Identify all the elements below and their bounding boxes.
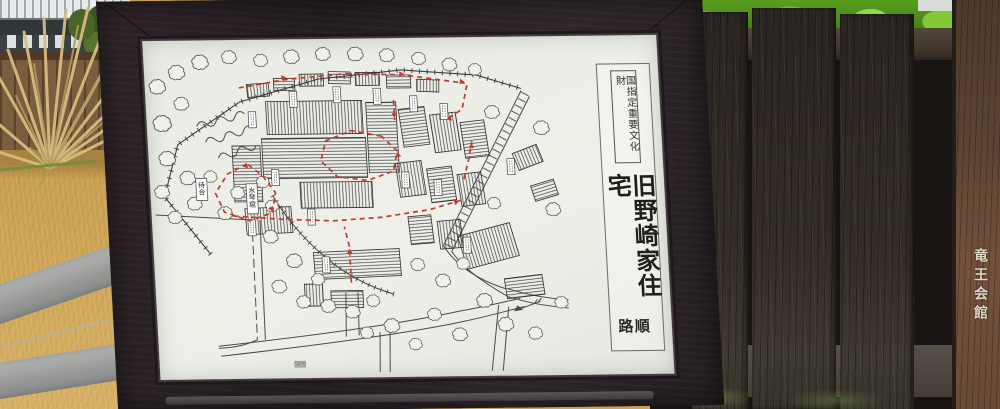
label-machiai: 待合: [197, 181, 206, 197]
frame-miter: [646, 0, 690, 34]
stamp-mark: [295, 361, 306, 367]
site-map: 待合 水琴窟: [144, 38, 574, 375]
board-title: 旧野崎家住宅: [604, 173, 661, 315]
map-panel: 待合 水琴窟: [142, 35, 674, 380]
hall-plaque-plank: 竜王会館: [956, 0, 1000, 409]
hall-plaque-text: 竜王会館: [970, 248, 990, 324]
label-suikinkutsu: 水琴窟: [248, 186, 257, 209]
notice-board: 待合 水琴窟: [96, 0, 724, 409]
frame-miter: [106, 4, 154, 40]
frame-highlight: [165, 391, 653, 405]
title-column: 国指定重要文化財 旧野崎家住宅 順路: [596, 63, 666, 351]
fence-plank: [752, 8, 836, 409]
route-label: 順路: [616, 318, 651, 347]
photo-scene: 竜王会館: [0, 0, 1000, 409]
board-frame: 待合 水琴窟: [96, 0, 724, 409]
fence-plank: [840, 14, 914, 409]
designation-label: 国指定重要文化財: [610, 70, 641, 163]
